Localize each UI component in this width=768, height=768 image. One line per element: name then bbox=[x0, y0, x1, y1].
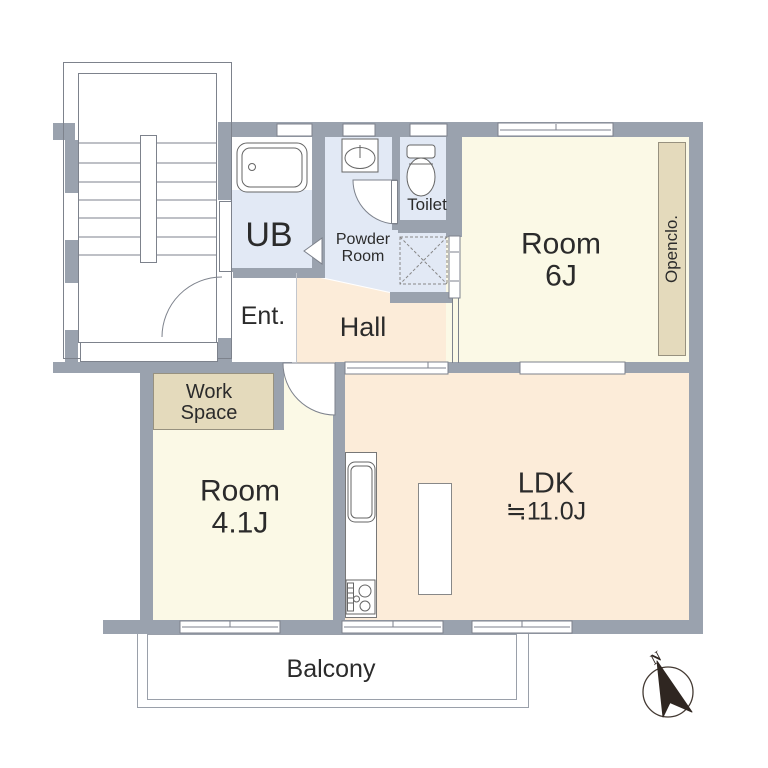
room6-ldk-door bbox=[520, 362, 625, 374]
hall-ldk-slider bbox=[345, 362, 448, 374]
bathtub-icon bbox=[237, 143, 307, 192]
powder-door-leaf bbox=[392, 181, 398, 224]
hall-room6-thin-wall bbox=[453, 298, 459, 363]
stove-icon bbox=[346, 580, 375, 614]
toilet-icon bbox=[407, 145, 435, 196]
table-counter bbox=[419, 484, 452, 595]
floor-plan: N UB Powder Room Toilet Room 6J Openclo.… bbox=[0, 0, 768, 768]
ub-folding-door bbox=[304, 238, 322, 264]
shoe-storage bbox=[220, 202, 232, 272]
staircase bbox=[64, 63, 232, 359]
kitchen-sink-icon bbox=[348, 462, 375, 522]
room6-side-door bbox=[449, 236, 460, 298]
windows-top bbox=[277, 123, 613, 136]
entrance-door-arc bbox=[162, 277, 222, 337]
powder-door-arc bbox=[353, 180, 397, 224]
vanity-sink-icon bbox=[342, 139, 378, 172]
compass-icon: N bbox=[643, 648, 693, 717]
room41-door-arc bbox=[283, 363, 335, 415]
compass-north-label: N bbox=[646, 648, 666, 669]
meter-box bbox=[81, 343, 218, 362]
balcony-outline bbox=[138, 634, 529, 708]
windows-bottom bbox=[180, 621, 572, 633]
washer-pan-icon bbox=[400, 237, 447, 284]
